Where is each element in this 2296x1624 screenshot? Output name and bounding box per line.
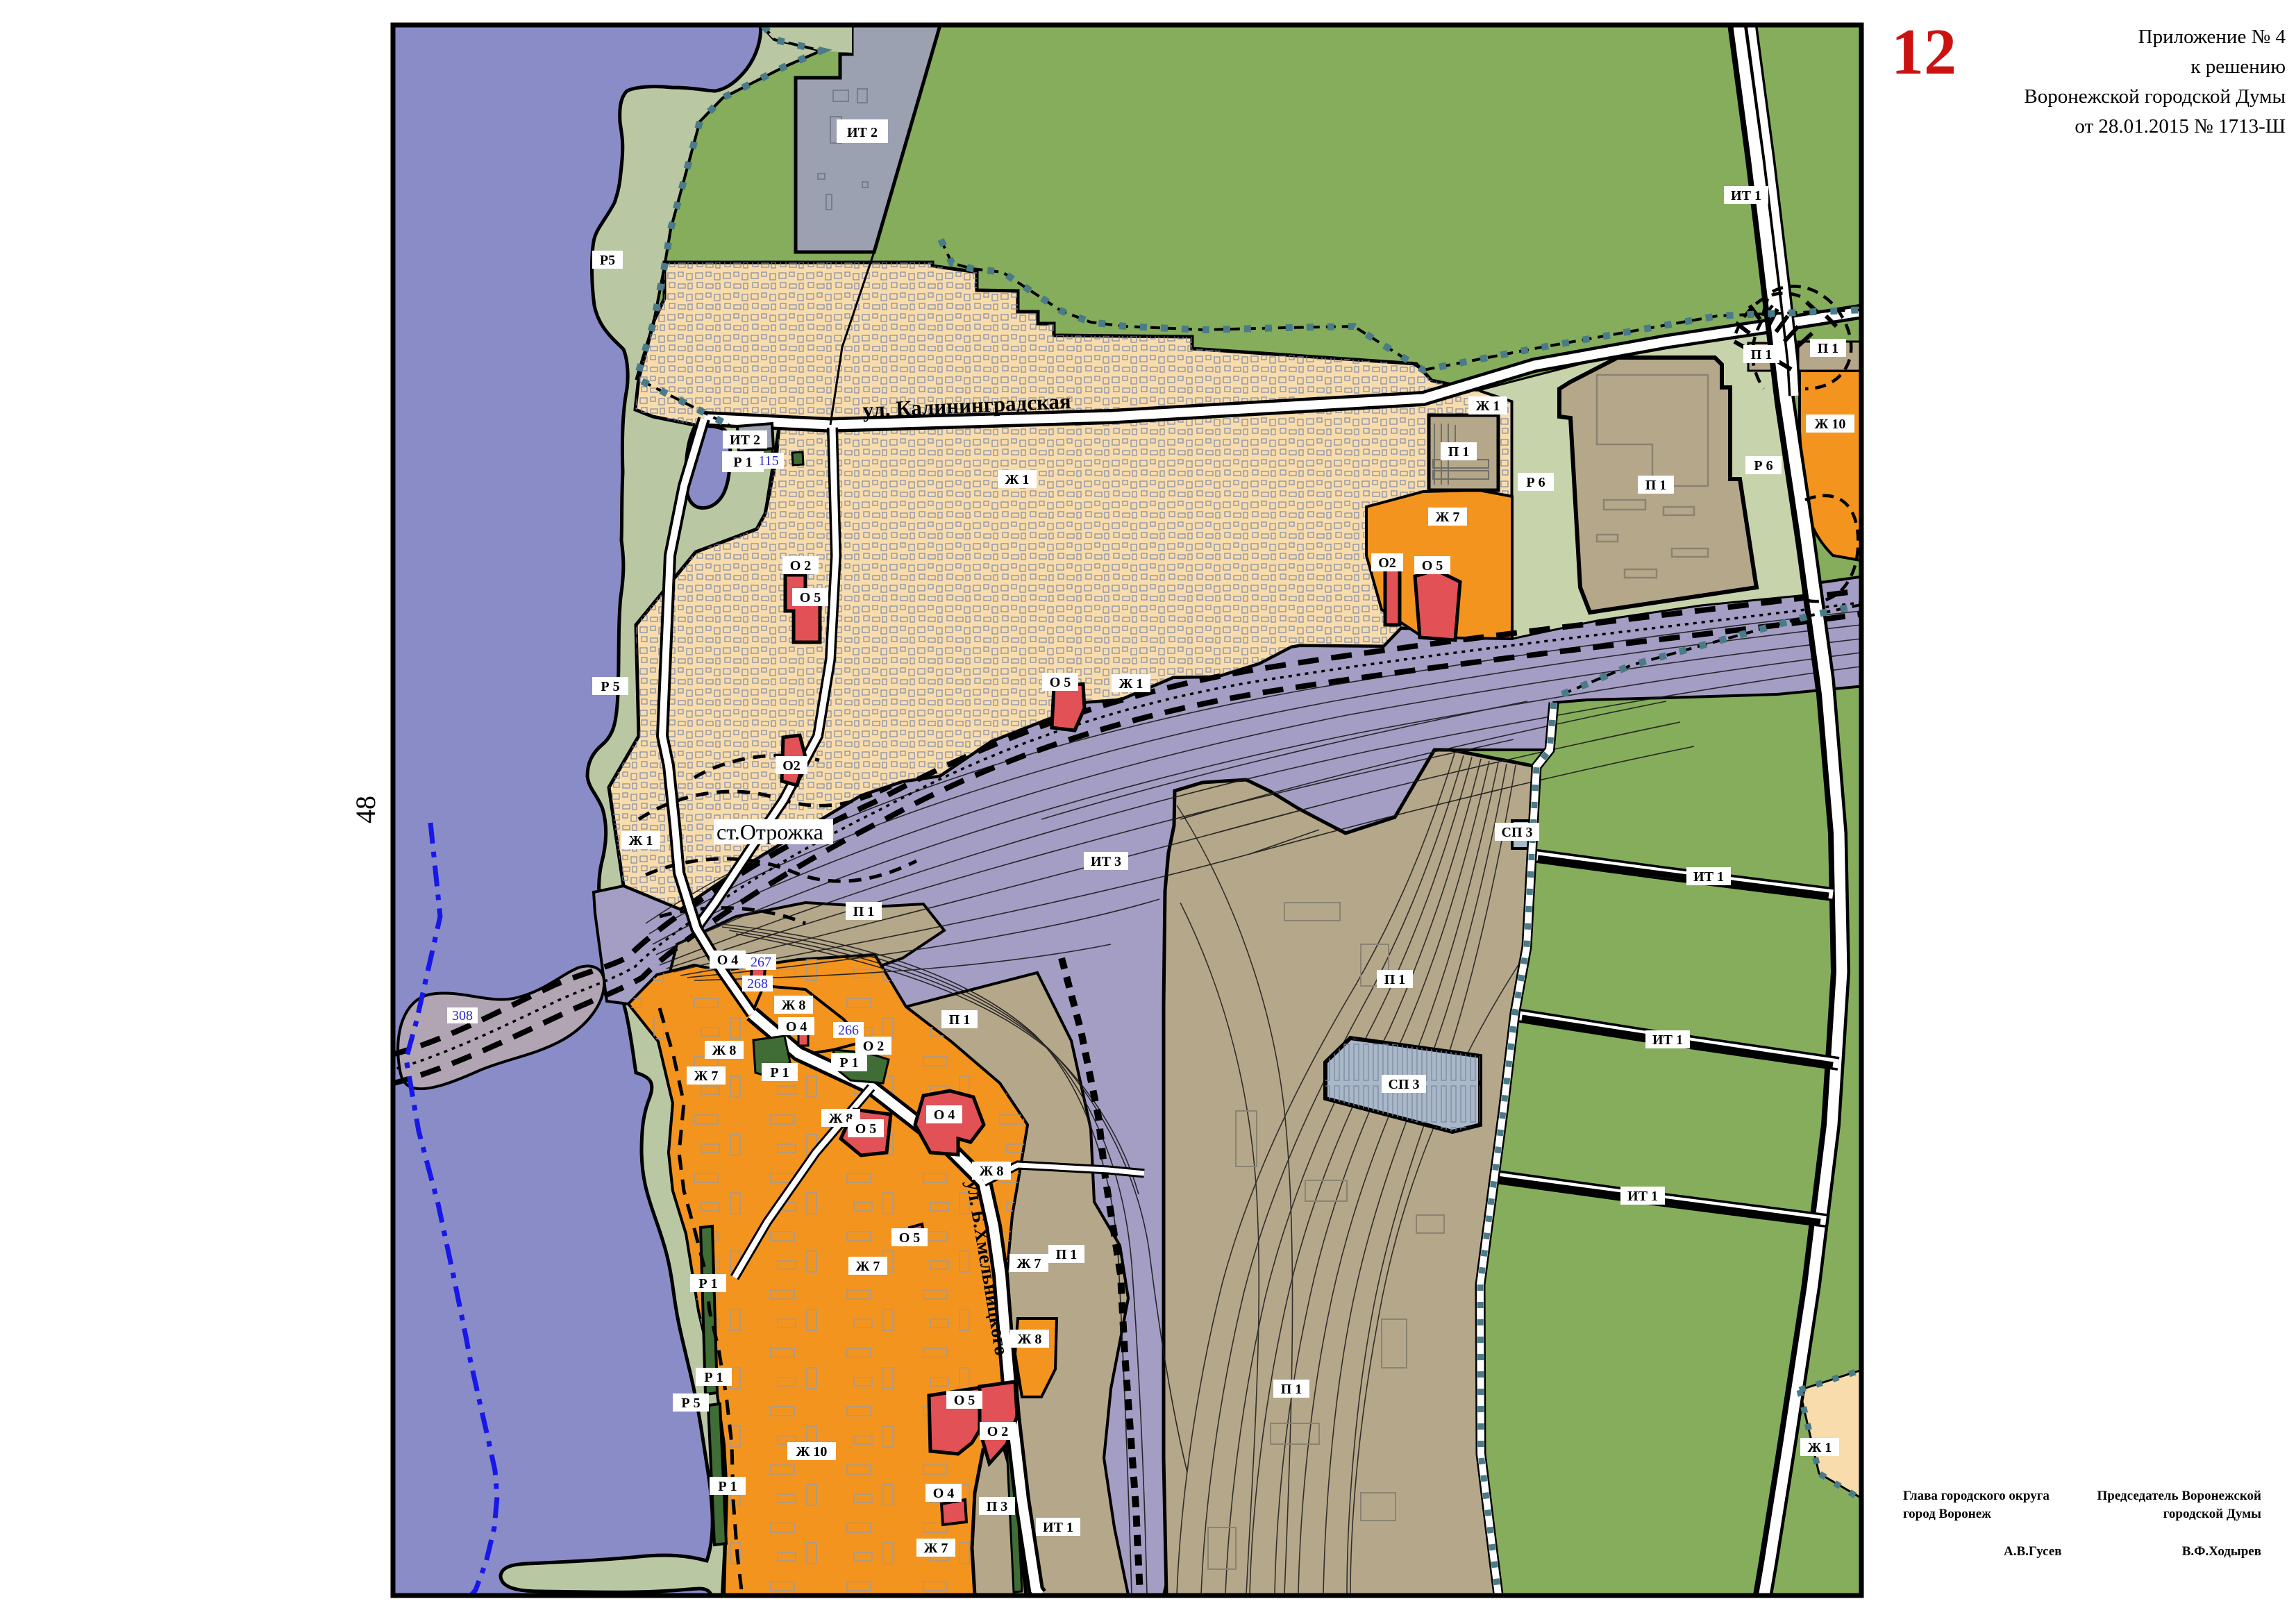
svg-text:Р 1: Р 1 — [698, 1276, 717, 1291]
svg-text:городской Думы: городской Думы — [2163, 1507, 2261, 1521]
svg-text:П 1: П 1 — [1448, 444, 1470, 460]
svg-text:Р 1: Р 1 — [839, 1055, 858, 1071]
svg-text:Ж 8: Ж 8 — [712, 1043, 737, 1058]
svg-text:П 1: П 1 — [1384, 972, 1406, 987]
svg-text:от 28.01.2015 № 1713-Ш: от 28.01.2015 № 1713-Ш — [2075, 115, 2286, 137]
svg-text:Воронежской городской Думы: Воронежской городской Думы — [2024, 85, 2286, 108]
svg-text:Ж 1: Ж 1 — [1808, 1440, 1832, 1455]
svg-text:О 5: О 5 — [800, 590, 821, 605]
svg-text:О 4: О 4 — [786, 1019, 807, 1035]
svg-text:П 1: П 1 — [1645, 478, 1667, 493]
svg-text:Р 1: Р 1 — [733, 455, 752, 470]
svg-text:268: 268 — [747, 976, 768, 991]
svg-text:О 4: О 4 — [934, 1107, 955, 1123]
svg-text:Ж 1: Ж 1 — [1476, 399, 1500, 414]
svg-text:П 1: П 1 — [1818, 341, 1839, 356]
svg-text:О 2: О 2 — [790, 558, 812, 574]
svg-text:267: 267 — [751, 955, 771, 970]
svg-text:Р 5: Р 5 — [601, 679, 619, 694]
svg-text:12: 12 — [1891, 16, 1956, 88]
svg-text:СП 3: СП 3 — [1389, 1077, 1420, 1092]
svg-text:ИТ 1: ИТ 1 — [1731, 188, 1761, 203]
svg-text:О 2: О 2 — [863, 1039, 885, 1054]
svg-text:Р 1: Р 1 — [704, 1370, 723, 1385]
svg-text:ИТ 1: ИТ 1 — [1627, 1189, 1658, 1204]
svg-text:П 1: П 1 — [1056, 1247, 1078, 1262]
svg-text:266: 266 — [838, 1023, 859, 1038]
svg-text:Ж 8: Ж 8 — [1018, 1332, 1042, 1347]
svg-text:Глава городского округа: Глава городского округа — [1903, 1489, 2050, 1503]
svg-text:Р 5: Р 5 — [681, 1396, 700, 1411]
svg-text:П 1: П 1 — [853, 904, 875, 919]
svg-text:СП 3: СП 3 — [1502, 825, 1533, 840]
svg-text:48: 48 — [350, 796, 381, 823]
svg-text:Р 6: Р 6 — [1754, 458, 1773, 474]
svg-text:Ж 7: Ж 7 — [694, 1069, 719, 1084]
svg-text:П 1: П 1 — [1281, 1382, 1302, 1397]
svg-text:Ж 10: Ж 10 — [796, 1444, 828, 1459]
svg-text:Р 1: Р 1 — [718, 1479, 737, 1494]
svg-text:Ж 8: Ж 8 — [782, 998, 806, 1013]
svg-text:Ж 7: Ж 7 — [856, 1259, 880, 1274]
svg-text:О2: О2 — [782, 758, 801, 773]
svg-text:Ж 7: Ж 7 — [1017, 1256, 1041, 1271]
svg-text:О 4: О 4 — [933, 1486, 955, 1501]
svg-text:ИТ 2: ИТ 2 — [730, 433, 760, 448]
svg-text:О 5: О 5 — [954, 1393, 975, 1408]
svg-text:ИТ 1: ИТ 1 — [1693, 869, 1724, 885]
svg-text:Ж 7: Ж 7 — [924, 1541, 948, 1556]
svg-text:О 5: О 5 — [855, 1121, 877, 1137]
svg-text:О 5: О 5 — [1050, 675, 1071, 690]
svg-text:Председатель Воронежской: Председатель Воронежской — [2097, 1489, 2262, 1503]
svg-text:ИТ 2: ИТ 2 — [847, 125, 878, 140]
svg-text:ИТ 1: ИТ 1 — [1652, 1032, 1683, 1048]
svg-text:Приложение № 4: Приложение № 4 — [2138, 26, 2286, 48]
svg-text:Ж 8: Ж 8 — [980, 1164, 1004, 1179]
svg-text:ИТ 3: ИТ 3 — [1091, 854, 1121, 869]
svg-text:В.Ф.Ходырев: В.Ф.Ходырев — [2182, 1544, 2261, 1559]
svg-text:город Воронеж: город Воронеж — [1903, 1507, 1991, 1521]
svg-text:П 3: П 3 — [987, 1499, 1008, 1514]
svg-text:Ж 7: Ж 7 — [1436, 510, 1460, 525]
svg-text:ст.Отрожка: ст.Отрожка — [717, 819, 823, 844]
svg-text:П 1: П 1 — [1751, 347, 1773, 362]
svg-text:О 4: О 4 — [717, 953, 739, 968]
svg-text:ИТ 1: ИТ 1 — [1043, 1520, 1073, 1535]
svg-text:Ж 10: Ж 10 — [1815, 417, 1846, 432]
svg-text:Р5: Р5 — [600, 253, 615, 268]
svg-text:308: 308 — [452, 1008, 473, 1023]
svg-text:О 5: О 5 — [899, 1230, 921, 1246]
svg-text:О 2: О 2 — [987, 1424, 1009, 1439]
svg-text:Р 6: Р 6 — [1526, 475, 1545, 490]
svg-text:О2: О2 — [1378, 555, 1396, 571]
svg-text:115: 115 — [758, 453, 778, 469]
svg-text:к решению: к решению — [2190, 56, 2286, 78]
svg-text:А.В.Гусев: А.В.Гусев — [2004, 1544, 2062, 1559]
svg-text:Р 1: Р 1 — [770, 1065, 789, 1080]
svg-text:Ж 1: Ж 1 — [629, 833, 653, 848]
svg-text:Ж 1: Ж 1 — [1119, 676, 1143, 692]
svg-text:О 5: О 5 — [1422, 558, 1443, 574]
svg-text:П 1: П 1 — [949, 1012, 971, 1028]
svg-text:Ж 1: Ж 1 — [1005, 472, 1030, 487]
